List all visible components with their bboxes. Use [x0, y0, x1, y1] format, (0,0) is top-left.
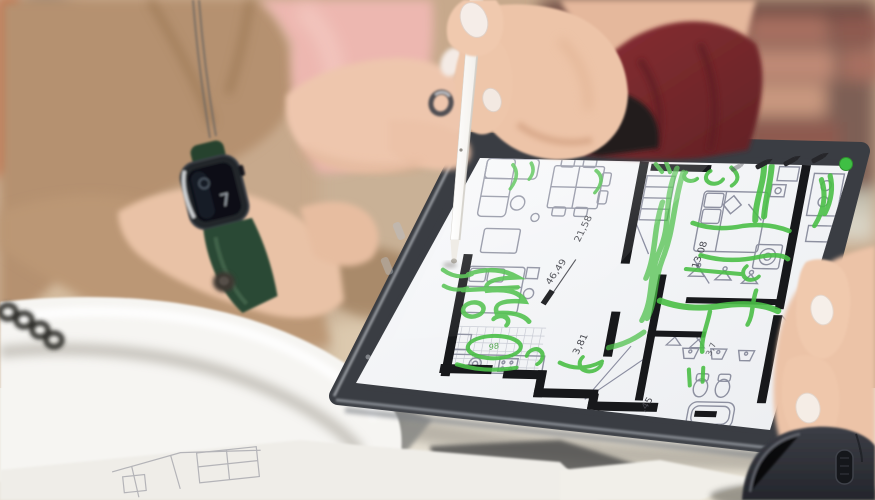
scroll-wheel [836, 450, 853, 484]
photo-scene: 7 [0, 0, 875, 500]
color-dot [840, 158, 853, 171]
photo-svg: 7 [0, 0, 875, 500]
